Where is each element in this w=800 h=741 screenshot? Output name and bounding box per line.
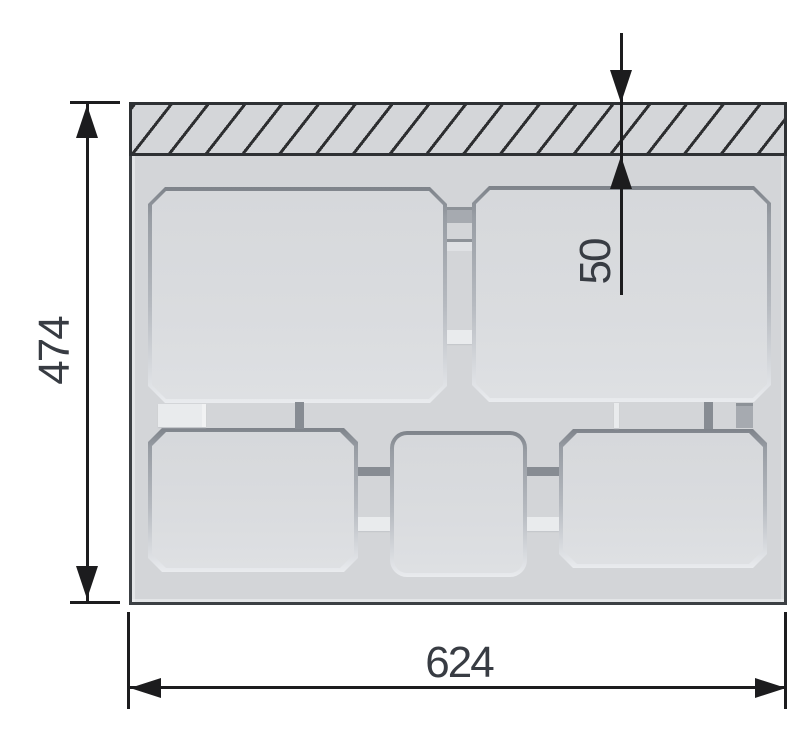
dim-height-label: 474	[33, 317, 77, 384]
dim-width-arrow-right-icon	[755, 678, 786, 698]
dim-height-arrow-up-icon	[76, 105, 98, 138]
tab-right-channel-dark	[736, 403, 753, 428]
tab-bottom-left-center-light	[358, 517, 390, 531]
dim-strip-label: 50	[574, 240, 618, 285]
pocket-top-left-floor	[152, 191, 443, 399]
dim-strip-arrow-up-icon	[610, 156, 632, 189]
connector-bottom-left-center	[358, 467, 390, 476]
pocket-bottom-left	[148, 428, 358, 572]
tab-left-channel-light	[158, 404, 206, 427]
drawing-canvas: 474 624 50	[0, 0, 800, 741]
connector-bottom-center-right	[527, 467, 559, 476]
stub-right-channel	[704, 402, 713, 429]
pocket-bottom-right-floor	[563, 433, 763, 564]
dim-width-label: 624	[425, 641, 492, 685]
dim-height-tick-bottom	[70, 601, 120, 604]
tab-right-channel-line	[614, 403, 619, 428]
pocket-bottom-right	[559, 429, 767, 568]
tab-top-channel-upper	[447, 207, 472, 223]
dim-strip-arrow-down-icon	[610, 70, 632, 103]
stub-left-channel	[295, 402, 304, 429]
pocket-top-left	[148, 187, 447, 403]
pocket-bottom-center	[390, 431, 527, 577]
tab-top-channel-light	[447, 330, 472, 344]
hatch-strip	[129, 102, 787, 156]
pocket-bottom-center-floor	[394, 435, 523, 573]
tab-top-channel-lower	[447, 239, 472, 251]
dim-height-line	[86, 103, 89, 603]
dim-width-arrow-left-icon	[130, 678, 161, 698]
dim-height-tick-top	[70, 101, 120, 104]
pocket-bottom-left-floor	[152, 432, 354, 568]
dim-height-arrow-down-icon	[76, 566, 98, 599]
tab-bottom-center-right-light	[527, 517, 559, 531]
